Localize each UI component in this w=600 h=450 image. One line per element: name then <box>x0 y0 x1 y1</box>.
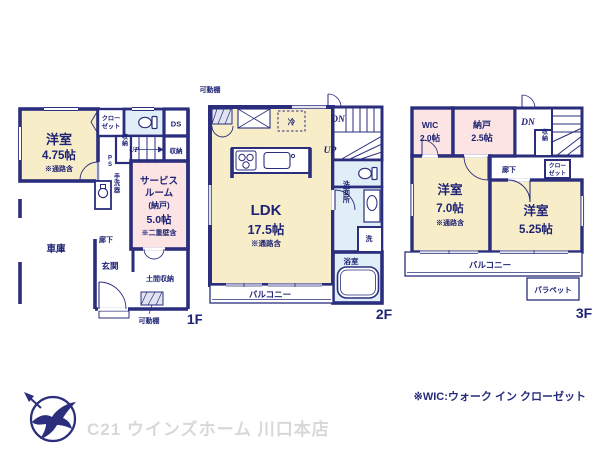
f3-floor-label: 3F <box>576 305 593 321</box>
f2-toilet-icon <box>359 168 377 180</box>
f3-closet-label: クロー <box>549 162 567 170</box>
f2-dn-label: DN <box>330 115 346 125</box>
f1-room-closet <box>98 109 124 136</box>
f1-service-size: 5.0帖 <box>146 213 172 226</box>
f1-service-note: ※二重壁含 <box>142 228 178 237</box>
company-name: C21 ウインズホーム 川口本店 <box>87 415 330 440</box>
floor-plan-1f: 洋室 4.75帖 ※通路含 クロー ゼット DS 収納 UP 収納 PS 手洗器… <box>6 82 202 344</box>
f2-bath-label: 浴室 <box>344 256 359 266</box>
f3-shuno-label: 収納 <box>541 128 548 143</box>
f2-kadoudana-label: 可動棚 <box>200 85 221 94</box>
f2-fridge-label: 冷 <box>288 117 296 127</box>
f1-closet-label: ゼット <box>102 123 121 131</box>
f1-roka-label: 廊下 <box>99 235 113 244</box>
f1-garage-label: 車庫 <box>46 243 66 255</box>
f2-ldk-size: 17.5帖 <box>248 222 285 237</box>
f1-doma-shuno-label: 土間収納 <box>146 274 174 283</box>
floor-plan-2f: 可動棚 冷 DN UP LDK 17.5帖 ※通路含 洗面所 洗 浴室 バルコニ… <box>200 80 402 342</box>
f1-genkan-label: 玄関 <box>101 261 118 271</box>
f3-yo525-name: 洋室 <box>523 203 549 218</box>
f3-wic-name: WIC <box>422 120 439 130</box>
f2-up-label: UP <box>324 146 337 156</box>
f3-yo7-name: 洋室 <box>437 182 463 197</box>
f1-shuno-mid-label: 収納 <box>121 133 128 148</box>
f1-service-name: ルーム <box>145 188 174 199</box>
f2-bathtub <box>338 267 379 298</box>
f2-room-ldk <box>210 107 333 285</box>
f2-washer-label: 洗 <box>366 234 373 243</box>
f2-ldk-note: ※通路含 <box>251 238 281 248</box>
f2-senmenjo-label: 洗面所 <box>342 180 351 204</box>
f3-wic-size: 2.0帖 <box>420 133 441 143</box>
f1-tearaiki-label: 手洗器 <box>113 171 121 194</box>
f3-room-wic <box>412 108 453 156</box>
kitchen-sink <box>264 153 290 169</box>
f3-nando-name: 納戸 <box>473 119 491 130</box>
f3-nando-size: 2.5帖 <box>471 132 493 143</box>
f2-pantry-counter <box>238 109 270 128</box>
f1-ds-label: DS <box>171 120 181 129</box>
f3-yo525-size: 5.25帖 <box>519 222 553 236</box>
f3-yo7-note: ※通路含 <box>436 218 465 227</box>
f1-service-name: (納戸) <box>148 200 170 210</box>
f3-dn-label: DN <box>520 118 536 128</box>
f2-kitchen <box>230 148 312 178</box>
f3-balcony-label: バルコニー <box>469 260 511 270</box>
f3-room-nando <box>453 108 515 156</box>
f2-vanity-sink <box>364 190 380 222</box>
f1-yoshitsu-name: 洋室 <box>46 132 72 147</box>
f1-service-name: サービス <box>140 175 178 187</box>
f2-ldk-name: LDK <box>251 202 282 219</box>
f1-up-label: UP <box>129 145 139 154</box>
f1-shuno-right-label: 収納 <box>170 146 184 155</box>
f3-yo7-size: 7.0帖 <box>436 201 464 215</box>
floor-plan-3f: WIC 2.0帖 納戸 2.5帖 DN 収納 廊下 クロー ゼット 洋室 7.0… <box>398 84 600 346</box>
company-logo <box>20 388 84 448</box>
f1-yoshitsu-size: 4.75帖 <box>42 148 76 162</box>
f3-roka-label: 廊下 <box>502 165 516 174</box>
f1-toilet-icon <box>139 117 157 129</box>
f2-balcony-label: バルコニー <box>249 290 291 300</box>
f1-yoshitsu-note: ※通路含 <box>45 164 74 173</box>
f3-top-door-flag <box>522 95 535 108</box>
wic-footnote: ※WIC:ウォーク イン クローゼット <box>414 388 586 404</box>
f3-parapet-label: パラペット <box>534 285 572 295</box>
f1-ps-label: PS <box>107 156 113 169</box>
f1-closet-label: クロー <box>102 115 121 123</box>
f1-kadoudana-label: 可動棚 <box>139 316 160 325</box>
f2-floor-label: 2F <box>376 306 393 322</box>
floorplan-canvas: 洋室 4.75帖 ※通路含 クロー ゼット DS 収納 UP 収納 PS 手洗器… <box>0 0 600 450</box>
f3-closet-label: ゼット <box>549 169 567 177</box>
